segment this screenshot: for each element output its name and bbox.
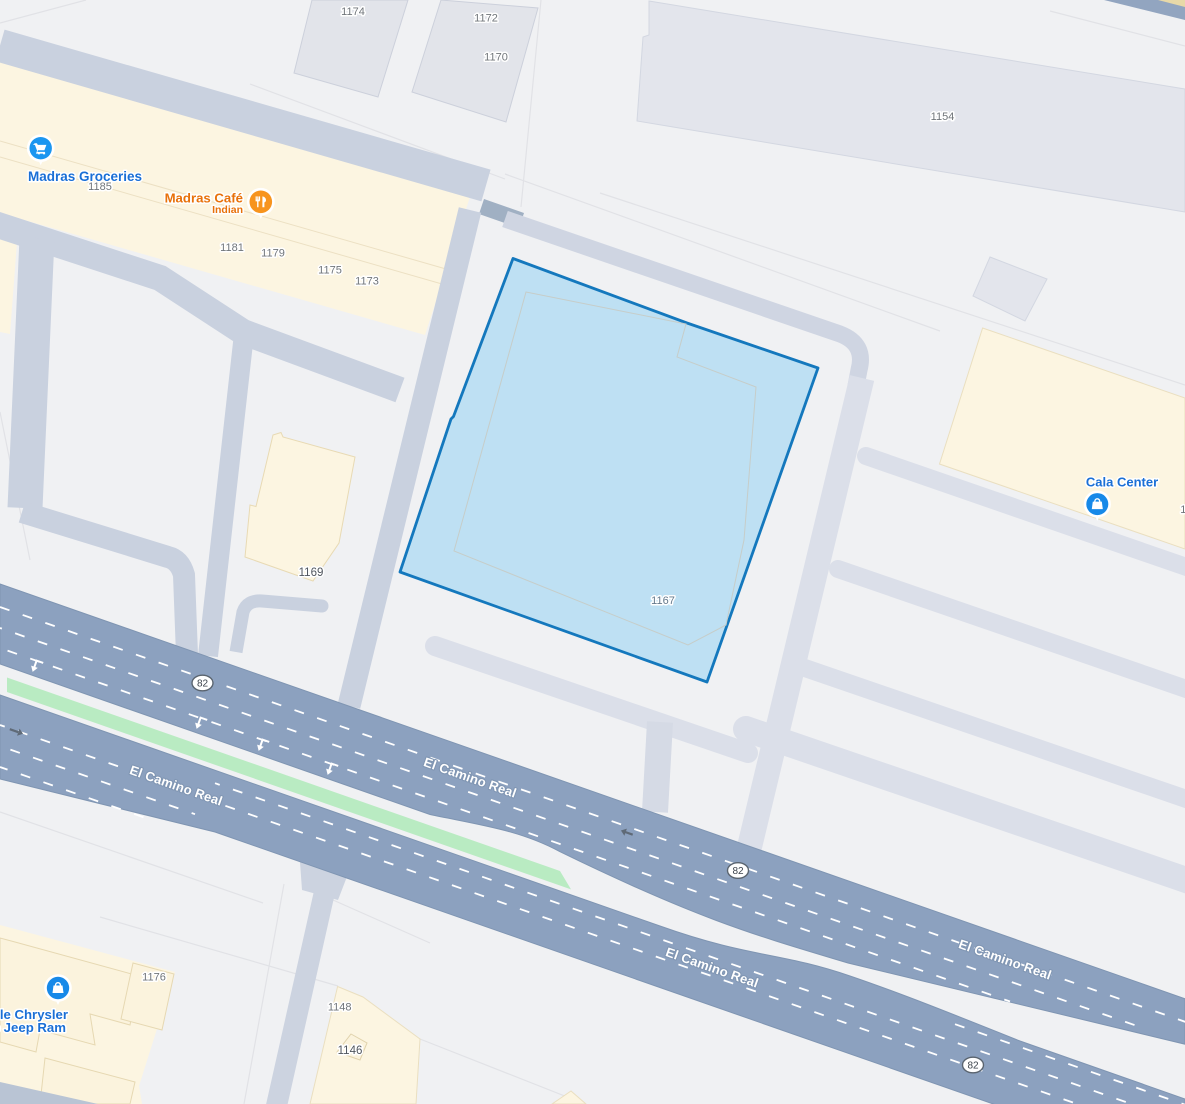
svg-text:82: 82 [967,1061,979,1072]
svg-text:Indian: Indian [212,204,243,216]
svg-text:1172: 1172 [474,13,498,25]
svg-text:82: 82 [732,866,744,877]
svg-text:1175: 1175 [318,265,342,277]
svg-text:1176: 1176 [142,972,166,984]
svg-text:e Jeep Ram: e Jeep Ram [0,1020,66,1035]
svg-text:Cala Center: Cala Center [1086,475,1158,490]
svg-text:11: 11 [1180,504,1185,516]
svg-text:1148: 1148 [328,1002,352,1014]
svg-text:1179: 1179 [261,248,285,260]
svg-text:1154: 1154 [931,111,955,123]
svg-text:1174: 1174 [341,6,365,18]
svg-text:1169: 1169 [299,567,324,579]
svg-text:1167: 1167 [651,595,675,607]
svg-text:82: 82 [197,679,209,690]
svg-text:1146: 1146 [338,1045,363,1057]
svg-text:1181: 1181 [220,242,244,254]
svg-text:Madras Groceries: Madras Groceries [28,169,142,184]
svg-text:1170: 1170 [484,52,508,64]
svg-text:1173: 1173 [355,276,379,288]
